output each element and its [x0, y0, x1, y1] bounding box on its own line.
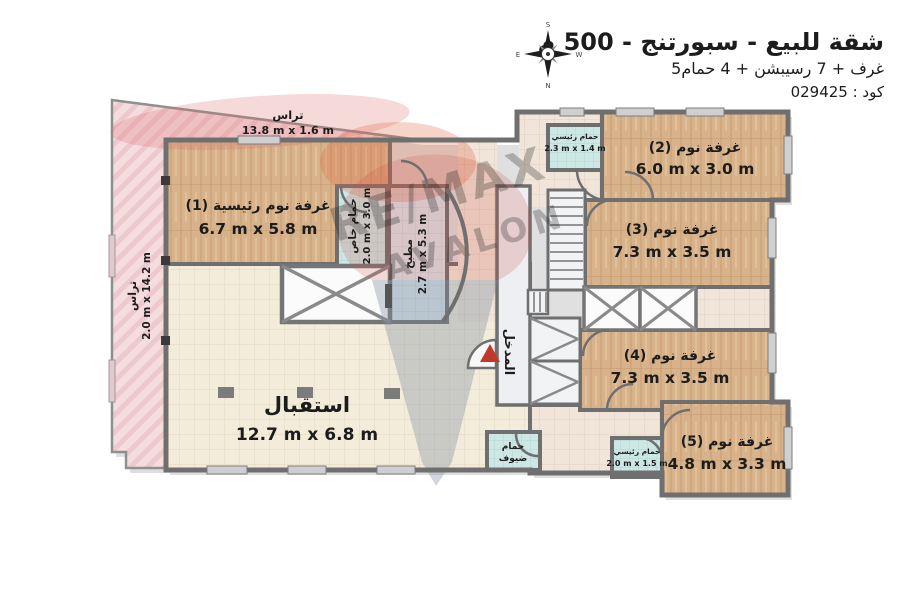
bath-private-label: حمام خاص [347, 198, 359, 254]
bath-main-top-dims: 2.3 m x 1.4 m [544, 144, 605, 153]
compass-right-letter: W [576, 51, 583, 59]
terrace-top-dims: 13.8 m x 1.6 m [242, 124, 334, 137]
header: شقة للبيع - سبورتنج - 500 م 5غرف + 7 رسي… [516, 21, 885, 101]
terrace-top-label: تراس [272, 108, 303, 122]
page-title: شقة للبيع - سبورتنج - 500 م [538, 28, 884, 56]
kitchen-label: مطبخ [402, 239, 415, 269]
bedroom5-dims: 4.8 m x 3.3 m [668, 455, 787, 473]
compass-top-letter: S [546, 21, 551, 29]
bath-main-top-label: حمام رئيسي [552, 132, 599, 141]
bedroom2-room [602, 112, 788, 200]
bedroom3-dims: 7.3 m x 3.5 m [613, 243, 732, 261]
bedroom5-label: غرفة نوم (5) [681, 434, 774, 450]
bedroom2-dims: 6.0 m x 3.0 m [636, 160, 755, 178]
terrace-left-dims: 2.0 m x 14.2 m [141, 252, 153, 340]
stair-flight-lower-2 [530, 361, 580, 404]
compass-left-letter: E [516, 51, 520, 59]
elevator-right [584, 287, 696, 330]
bedroom3-label: غرفة نوم (3) [626, 222, 719, 238]
bath-guest-label-line2: ضيوف [499, 454, 527, 464]
bedroom2-label: غرفة نوم (2) [649, 140, 742, 156]
master-bedroom-label: غرفة نوم رئيسية (1) [186, 198, 331, 214]
stair-flight-lower-1 [530, 318, 580, 361]
bath-main-bottom-dims: 2.0 m x 1.5 m [606, 459, 667, 468]
bath-guest-label-line1: حمام [502, 442, 525, 452]
bath-private-dims: 2.0 m x 3.0 m [362, 188, 373, 265]
listing-code: كود : 029425 [791, 83, 885, 101]
master-bedroom-dims: 6.7 m x 5.8 m [199, 220, 318, 238]
reception-label: استقبال [264, 393, 350, 417]
bedroom4-dims: 7.3 m x 3.5 m [611, 369, 730, 387]
entrance-label: المدخل [501, 329, 516, 376]
reception-dims: 12.7 m x 6.8 m [236, 425, 378, 445]
bedroom4-label: غرفة نوم (4) [624, 348, 717, 364]
floorplan-drawing: شقة للبيع - سبورتنج - 500 م 5غرف + 7 رسي… [0, 0, 900, 599]
bath-main-bottom-label: حمام رئيسي [614, 447, 661, 456]
page-subtitle: 5غرف + 7 رسيبشن + 4 حمام [671, 59, 884, 79]
kitchen-dims: 2.7 m x 5.3 m [417, 214, 429, 295]
terrace-left-label: تراس [126, 281, 139, 311]
compass-bottom-letter: N [545, 82, 550, 90]
floorplan-page: شقة للبيع - سبورتنج - 500 م 5غرف + 7 رسي… [0, 0, 900, 599]
